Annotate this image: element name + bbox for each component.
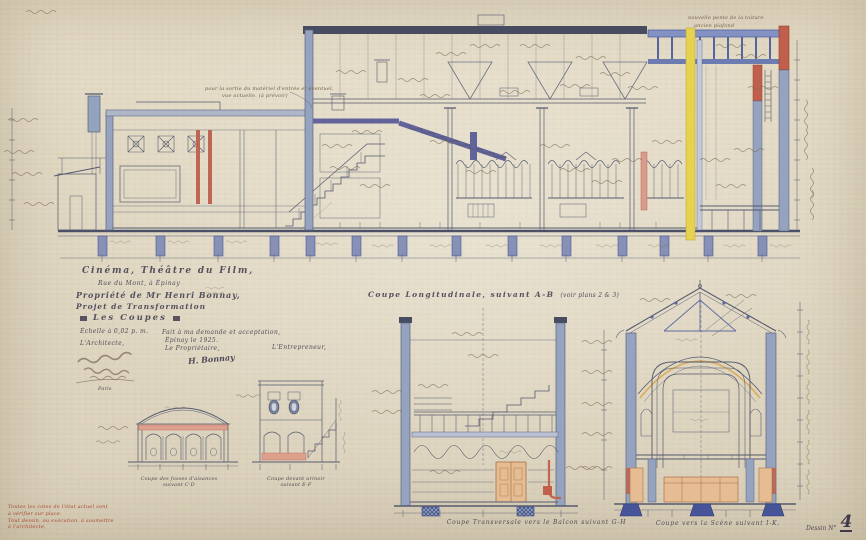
section-ef-label-line2: suivant E-F (248, 482, 344, 488)
architect-label: L'Architecte, (80, 340, 124, 347)
main-section-label-text: Coupe Longitudinale, suivant A-B (368, 290, 554, 299)
section-ef-label: Coupe devant urinoir suivant E-F (248, 476, 344, 488)
drawing-number-label: Dessin N° (806, 525, 836, 532)
safety-curtain (686, 28, 695, 240)
section-cd (128, 408, 238, 470)
main-section-label: Coupe Longitudinale, suivant A-B(voir pl… (368, 282, 619, 301)
section-ef (252, 381, 340, 470)
section-ik-label: Coupe vers la Scène suivant I-K. (648, 520, 788, 527)
dimension-chains (9, 40, 800, 230)
date-line: Épinay le 1925. (165, 337, 218, 344)
section-cd-label: Coupe des fosses d'aisances suivant C-D (123, 476, 235, 488)
blueprint-sheet: Cinéma, Théâtre du Film, Rue du Mont, à … (0, 0, 866, 540)
roof-slope-note: nouvelle pente de la toiture (688, 15, 764, 21)
title-line-2: Rue du Mont, à Épinay (98, 280, 180, 287)
drawing-number-value: 4 (840, 516, 852, 532)
old-ceiling-note: ancien plafond (694, 23, 734, 29)
verification-footnote: Toutes les cotes de l'état actuel sont à… (8, 504, 114, 531)
scale-note: Échelle à 0,02 p. m. (80, 328, 148, 335)
ornament-block-right (173, 316, 180, 321)
foyer-block (106, 102, 312, 230)
section-cd-label-line2: suivant C-D (123, 482, 235, 488)
material-note-line2: vue actuelle. (à prévoir) (222, 93, 288, 99)
contractor-label: L'Entrepreneur, (272, 344, 326, 351)
drawing-number: Dessin N° 4 (806, 516, 852, 532)
stage-house (641, 26, 789, 240)
footnote-line1: Toutes les cotes de l'état actuel sont (8, 504, 114, 511)
left-annex (54, 94, 106, 230)
material-note-line1: pour la sortie du matériel d'entrée et é… (205, 86, 334, 92)
approval-line: Fait à ma demande et acceptation, (162, 329, 281, 336)
title-line-5-text: Les Coupes (93, 313, 167, 323)
main-longitudinal-section (9, 15, 800, 262)
architect-city: Paris (98, 386, 112, 392)
footnote-line2: à vérifier sur place. (8, 511, 114, 518)
title-line-3: Propriété de Mr Henri Bonnay, (76, 290, 241, 300)
title-line-4: Projet de Transformation (76, 302, 206, 311)
ornament-block-left (80, 316, 87, 321)
main-section-label-note: (voir plans 2 & 3) (560, 292, 619, 299)
section-ik (601, 280, 803, 517)
footnote-line4: à l'architecte. (8, 524, 114, 531)
section-gh (394, 308, 578, 517)
balcony-steel (313, 121, 506, 160)
section-gh-label: Coupe Transversale vers le Balcon suivan… (424, 519, 649, 526)
owner-label: Le Propriétaire, (165, 345, 220, 352)
title-line-1: Cinéma, Théâtre du Film, (82, 266, 254, 276)
title-line-5: Les Coupes (80, 313, 180, 323)
